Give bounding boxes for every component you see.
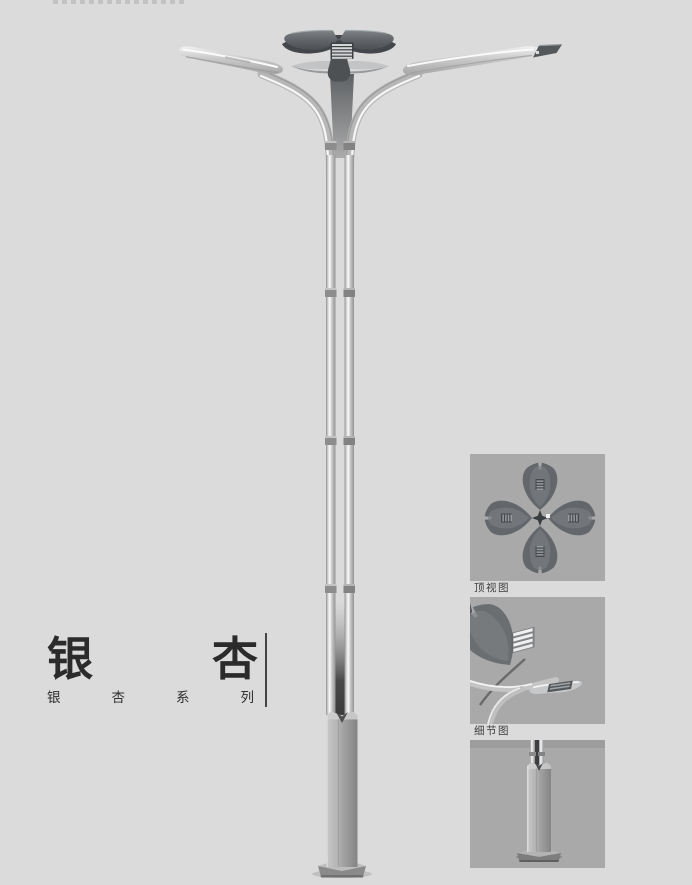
base-column (312, 712, 372, 879)
top-view-image (470, 454, 605, 581)
title-char-1: 银 (47, 636, 93, 682)
base-view-tubes (529, 740, 545, 766)
right-arm (346, 72, 419, 173)
detail-view-image (470, 597, 605, 724)
thumbnail-top-view (470, 454, 605, 581)
pole-tubes (326, 155, 354, 715)
product-title: 银 杏 (47, 636, 258, 682)
base-view-image (470, 740, 605, 868)
thumbnail-base-view (470, 740, 605, 868)
catalog-page: 银 杏 银杏系列 顶视图 (0, 0, 692, 885)
right-lamp-head (403, 45, 562, 76)
detail-view-label: 细节图 (474, 725, 510, 738)
ginkgo-crown (282, 31, 396, 82)
left-lamp-head (179, 46, 283, 74)
base-view-column (527, 763, 551, 853)
series-subtitle: 银杏系列 (47, 691, 305, 706)
left-arm (261, 72, 334, 173)
title-char-2: 杏 (212, 636, 258, 682)
thumbnail-detail-view (470, 597, 605, 724)
top-view-label: 顶视图 (474, 582, 510, 595)
